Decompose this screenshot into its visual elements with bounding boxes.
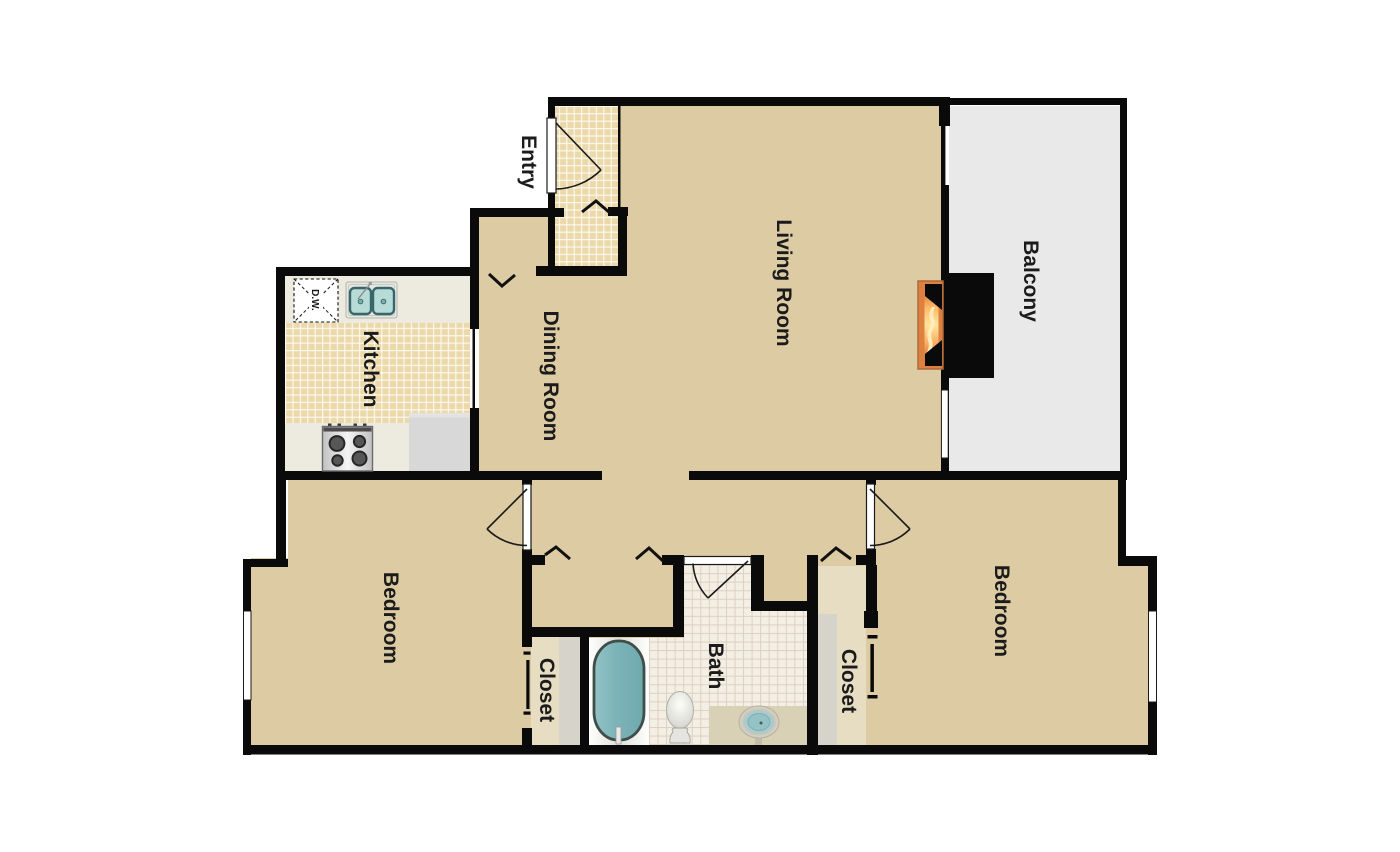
svg-text:Closet: Closet	[837, 649, 860, 713]
svg-text:Bedroom: Bedroom	[379, 572, 402, 664]
svg-text:Entry: Entry	[517, 135, 540, 189]
svg-text:Bath: Bath	[704, 643, 727, 690]
svg-text:Dining Room: Dining Room	[539, 311, 562, 442]
svg-text:D.W.: D.W.	[309, 289, 320, 311]
svg-text:Closet: Closet	[535, 658, 558, 722]
svg-text:Kitchen: Kitchen	[359, 330, 382, 407]
svg-text:Balcony: Balcony	[1019, 240, 1042, 322]
svg-text:Bedroom: Bedroom	[990, 565, 1013, 657]
svg-text:Living Room: Living Room	[772, 219, 795, 346]
